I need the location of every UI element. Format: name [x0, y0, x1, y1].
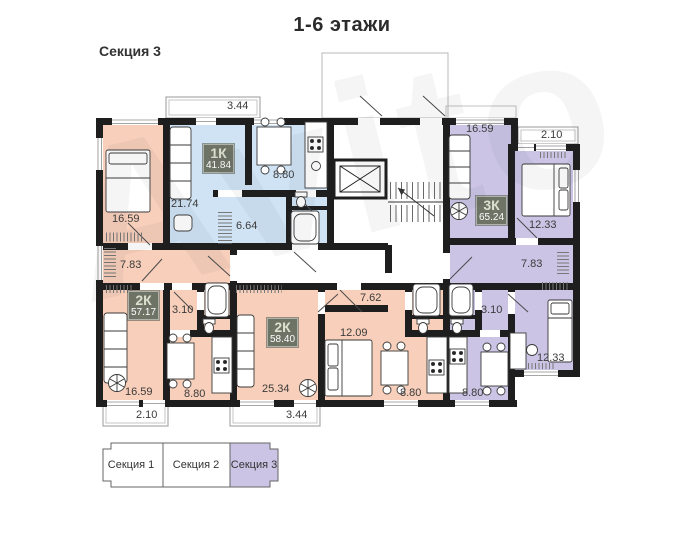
dimension-label: 25.34	[262, 383, 290, 395]
legend-section-1[interactable]: Секция 1	[108, 459, 154, 471]
stove-icon	[308, 137, 323, 152]
stairs-icon	[388, 188, 443, 216]
sofa	[237, 315, 254, 387]
legend-section-3[interactable]: Секция 3	[231, 459, 277, 471]
dimension-label: 7.62	[360, 292, 381, 304]
dimension-label: 8.80	[400, 387, 421, 399]
bathtub-icon	[449, 284, 473, 316]
dimension-label: 7.83	[521, 258, 542, 270]
bed	[522, 164, 570, 216]
entrance-vestibule-outline	[322, 53, 448, 118]
sink-icon	[312, 162, 321, 171]
dimension-label: 21.74	[171, 198, 199, 210]
dimension-label: 16.59	[125, 386, 153, 398]
stove-icon	[214, 358, 229, 373]
apartment-badge: 2К58.40	[267, 318, 298, 347]
stove-icon	[450, 349, 465, 364]
fan-icon	[109, 375, 126, 392]
kitchen-counter	[449, 337, 467, 393]
dimension-label: 3.10	[481, 304, 502, 316]
dimension-label: 8.80	[184, 388, 205, 400]
fan-icon	[300, 380, 317, 397]
dimension-label: 16.59	[112, 213, 140, 225]
sofa	[170, 127, 191, 199]
dimension-label: 2.10	[541, 129, 562, 141]
dimension-label: 8.80	[273, 169, 294, 181]
dimension-label: 2.10	[136, 409, 157, 421]
coffee-table	[174, 215, 192, 231]
dimension-label: 6.64	[236, 220, 257, 232]
sofa	[449, 135, 470, 199]
apartment-badge: 3К65.24	[476, 196, 507, 225]
dimension-label: 12.33	[537, 352, 565, 364]
stove-icon	[429, 360, 444, 375]
dimension-label: 3.44	[286, 409, 307, 421]
bathtub-icon	[291, 211, 319, 244]
apartment-badge: 2К57.17	[128, 291, 159, 320]
bed	[325, 340, 372, 396]
dimension-label: 16.59	[466, 123, 494, 135]
apartment-badge: 1К41.84	[203, 144, 234, 173]
bed	[106, 150, 150, 212]
fan-icon	[451, 203, 468, 220]
dimension-label: 12.09	[340, 327, 368, 339]
bathtub-icon	[205, 283, 229, 317]
legend-section-2[interactable]: Секция 2	[173, 459, 219, 471]
dimension-label: 8.80	[462, 387, 483, 399]
floorplan-drawing	[0, 0, 684, 540]
bathtub-icon	[413, 284, 440, 316]
dimension-label: 12.33	[529, 219, 557, 231]
dimension-label: 7.83	[120, 259, 141, 271]
kitchen-counter	[305, 122, 327, 188]
elevator-icon	[334, 160, 386, 198]
sofa	[104, 313, 127, 383]
dimension-label: 3.10	[172, 304, 193, 316]
dimension-label: 3.44	[227, 100, 248, 112]
